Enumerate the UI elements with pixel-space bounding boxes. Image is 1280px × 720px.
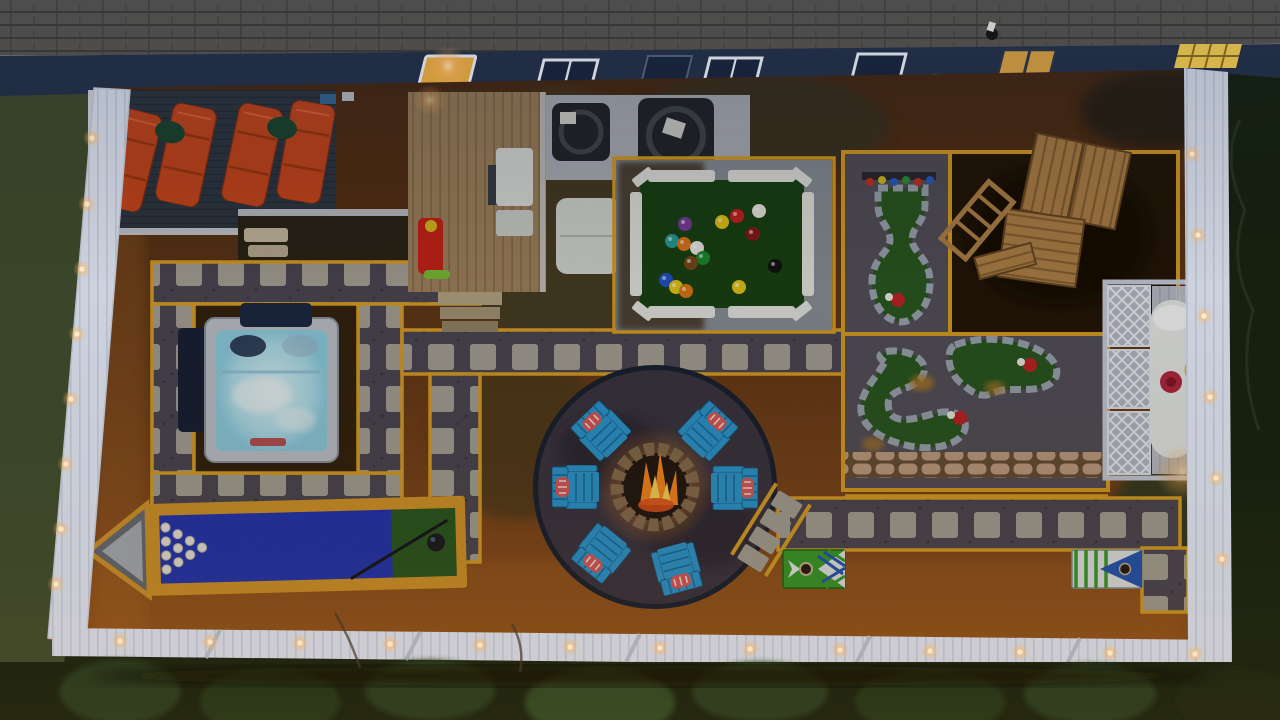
backyard-scene-svg	[0, 0, 1280, 720]
backyard-aerial-photo	[0, 0, 1280, 720]
dusk-overlay	[0, 0, 1280, 720]
